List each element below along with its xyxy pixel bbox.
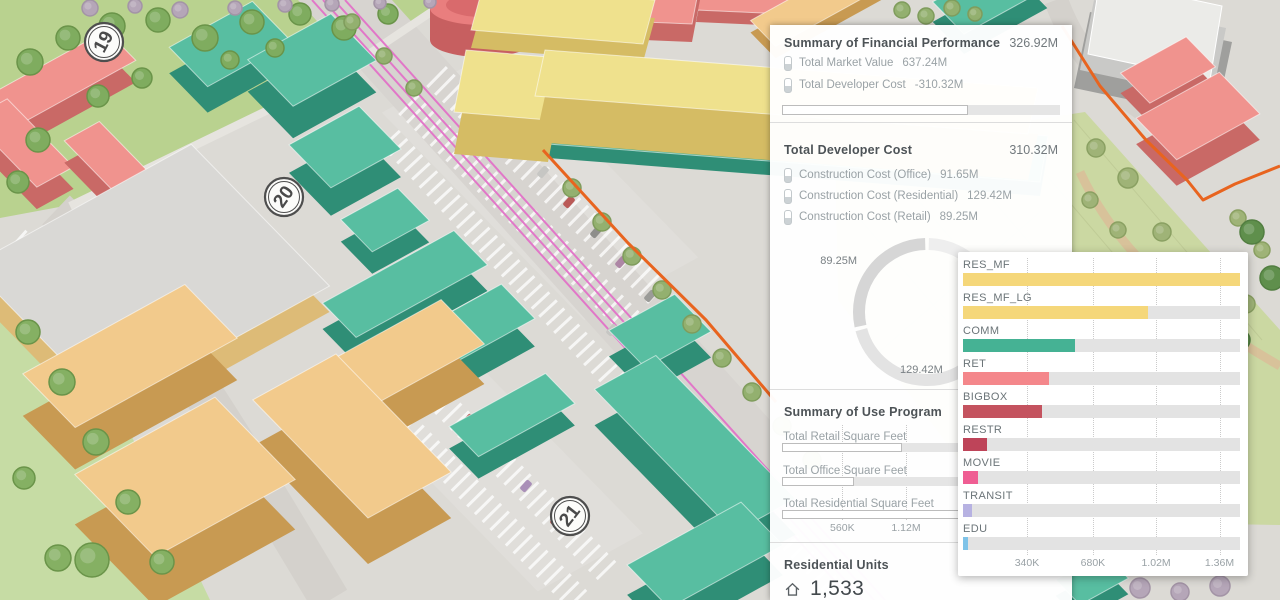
home-icon [784, 581, 801, 598]
metric-value: 637.24M [902, 57, 947, 69]
metric-pill-icon [784, 210, 792, 225]
bar-fill [963, 372, 1049, 385]
parcel-marker-19[interactable]: 19 [85, 23, 123, 61]
bar-row-MOVIE: MOVIE [963, 456, 1240, 489]
metric-value: 89.25M [940, 211, 978, 223]
bar-row-RESTR: RESTR [963, 423, 1240, 456]
donut-label-retail: 89.25M [800, 255, 857, 267]
bar-row-RES_MF_LG: RES_MF_LG [963, 291, 1240, 324]
developer-cost-total: 310.32M [1009, 143, 1058, 157]
axis-tick: 1.36M [1198, 557, 1242, 569]
bar-fill [963, 438, 987, 451]
financial-summary-total: 326.92M [1009, 36, 1058, 50]
axis-tick: 680K [1071, 557, 1115, 569]
bar-label: RESTR [963, 423, 1240, 438]
bar-label: COMM [963, 324, 1240, 339]
bar-fill [963, 471, 978, 484]
bar-label: TRANSIT [963, 489, 1240, 504]
bar-fill [963, 537, 968, 550]
metric-row-retail-cost: Construction Cost (Retail) 89.25M [784, 209, 978, 225]
bar-track [963, 504, 1240, 517]
bar-fill [963, 306, 1148, 319]
residential-units-value: 1,533 [810, 577, 864, 600]
metric-label: Total Developer Cost [799, 79, 906, 91]
metric-value: 91.65M [940, 169, 978, 181]
build-type-bar-chart-panel: RES_MFRES_MF_LGCOMMRETBIGBOXRESTRMOVIETR… [958, 252, 1248, 576]
bar-track [963, 438, 1240, 451]
metric-label: Total Market Value [799, 57, 893, 69]
metric-row-developer-cost: Total Developer Cost -310.32M [784, 77, 963, 93]
developer-cost-title: Total Developer Cost [784, 143, 912, 157]
financial-summary-title: Summary of Financial Performance [784, 36, 1000, 50]
bar-label: BIGBOX [963, 390, 1240, 405]
bar-row-TRANSIT: TRANSIT [963, 489, 1240, 522]
metric-row-office-cost: Construction Cost (Office) 91.65M [784, 167, 978, 183]
metric-label: Construction Cost (Office) [799, 169, 931, 181]
bar-track [963, 372, 1240, 385]
bar-chart-rows: RES_MFRES_MF_LGCOMMRETBIGBOXRESTRMOVIETR… [963, 258, 1240, 555]
divider [770, 122, 1072, 123]
bar-label: RET [963, 357, 1240, 372]
slider-fill[interactable] [782, 443, 902, 452]
bar-track [963, 537, 1240, 550]
bar-label: RES_MF_LG [963, 291, 1240, 306]
metric-label: Construction Cost (Retail) [799, 211, 931, 223]
bar-fill [963, 405, 1042, 418]
metric-label: Construction Cost (Residential) [799, 190, 958, 202]
slider-fill[interactable] [782, 105, 968, 115]
donut-label-residential: 129.42M [900, 364, 943, 376]
axis-tick: 1.12M [881, 522, 931, 534]
metric-value: 129.42M [967, 190, 1012, 202]
parcel-marker-21[interactable]: 21 [551, 497, 589, 535]
financial-threshold-slider[interactable] [782, 105, 1060, 115]
bar-track [963, 405, 1240, 418]
bar-track [963, 471, 1240, 484]
bar-label: RES_MF [963, 258, 1240, 273]
metric-pill-icon [784, 168, 792, 183]
bar-track [963, 339, 1240, 352]
bar-fill [963, 504, 972, 517]
axis-tick: 560K [817, 522, 867, 534]
metric-pill-icon [784, 78, 792, 93]
bar-row-COMM: COMM [963, 324, 1240, 357]
bar-row-EDU: EDU [963, 522, 1240, 555]
bar-row-RES_MF: RES_MF [963, 258, 1240, 291]
metric-row-residential-cost: Construction Cost (Residential) 129.42M [784, 188, 1012, 204]
residential-units-row: 1,533 [784, 577, 864, 600]
metric-pill-icon [784, 189, 792, 204]
bar-fill [963, 273, 1240, 286]
metric-pill-icon [784, 56, 792, 71]
axis-tick: 1.02M [1134, 557, 1178, 569]
slider-fill[interactable] [782, 477, 854, 486]
app-window: 192021 Summary of Financial Performance … [0, 0, 1280, 600]
bar-track [963, 273, 1240, 286]
metric-row-market-value: Total Market Value 637.24M [784, 55, 947, 71]
bar-row-BIGBOX: BIGBOX [963, 390, 1240, 423]
bar-fill [963, 339, 1075, 352]
axis-tick: 340K [1005, 557, 1049, 569]
bar-track [963, 306, 1240, 319]
residential-units-title: Residential Units [784, 558, 889, 572]
donut-segment [859, 244, 925, 326]
metric-value: -310.32M [915, 79, 964, 91]
bar-row-RET: RET [963, 357, 1240, 390]
use-program-title: Summary of Use Program [784, 405, 942, 419]
bar-label: MOVIE [963, 456, 1240, 471]
parcel-marker-20[interactable]: 20 [265, 178, 303, 216]
bar-label: EDU [963, 522, 1240, 537]
